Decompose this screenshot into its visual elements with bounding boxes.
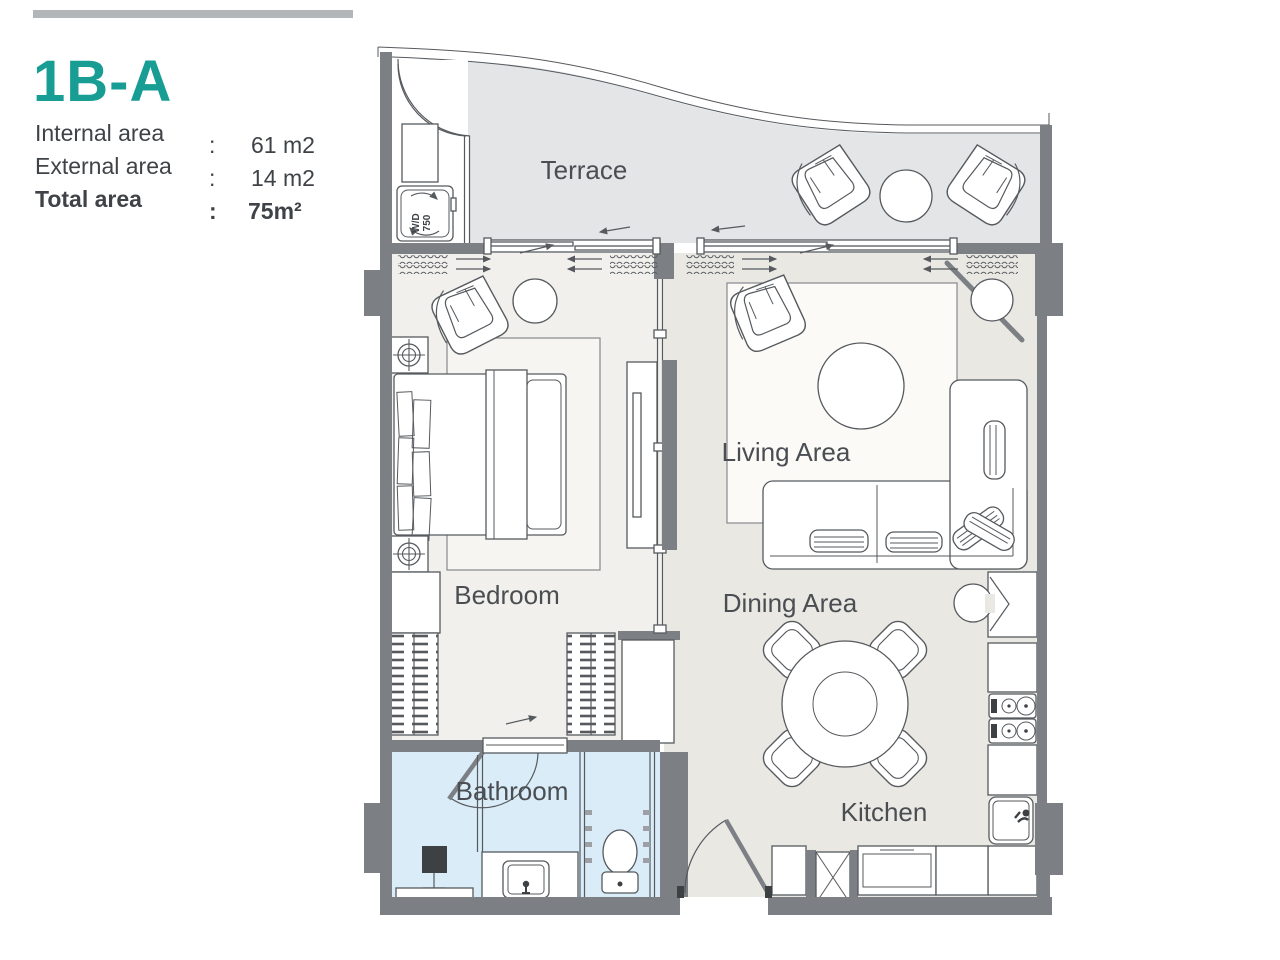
tall-unit [816,852,850,903]
utility-closet: W/D 750 [392,59,470,243]
wall-light-niche-lower [390,536,428,572]
toilet [602,830,638,893]
bathroom-doorway [483,738,567,753]
terrace-floor [399,59,1040,243]
kitchen-bottom-counter [772,846,988,903]
dining-area [758,616,932,792]
living-label: Living Area [722,437,851,467]
washer-dryer: W/D 750 [397,186,456,241]
tv-console [627,362,657,548]
terrace-side-table [880,170,932,222]
coffee-table [818,343,904,429]
bathroom-label: Bathroom [456,776,569,806]
bedroom-label: Bedroom [454,580,560,610]
oven-cabinet [858,846,936,895]
bedroom-terrace-door [484,238,660,254]
bed [394,370,566,540]
floorplan-page: 1B-A Internal area External area Total a… [0,0,1280,960]
vanity [482,852,578,903]
kitchen-sink [989,797,1033,844]
wall-light-niche-upper [390,337,428,373]
living-area [717,260,1027,569]
dining-label: Dining Area [723,588,858,618]
washer-dryer-label-2: 750 [422,214,433,231]
bedroom-side-table [513,279,557,323]
kitchen-label: Kitchen [841,797,928,827]
cooktop [989,694,1036,743]
bedroom-cabinet [390,572,440,633]
terrace-label: Terrace [541,155,628,185]
floorplan-drawing: W/D 750 [0,0,1280,960]
linen-cabinet [622,640,674,743]
washer-dryer-label-1: W/D [411,213,422,232]
dining-table [782,641,908,767]
